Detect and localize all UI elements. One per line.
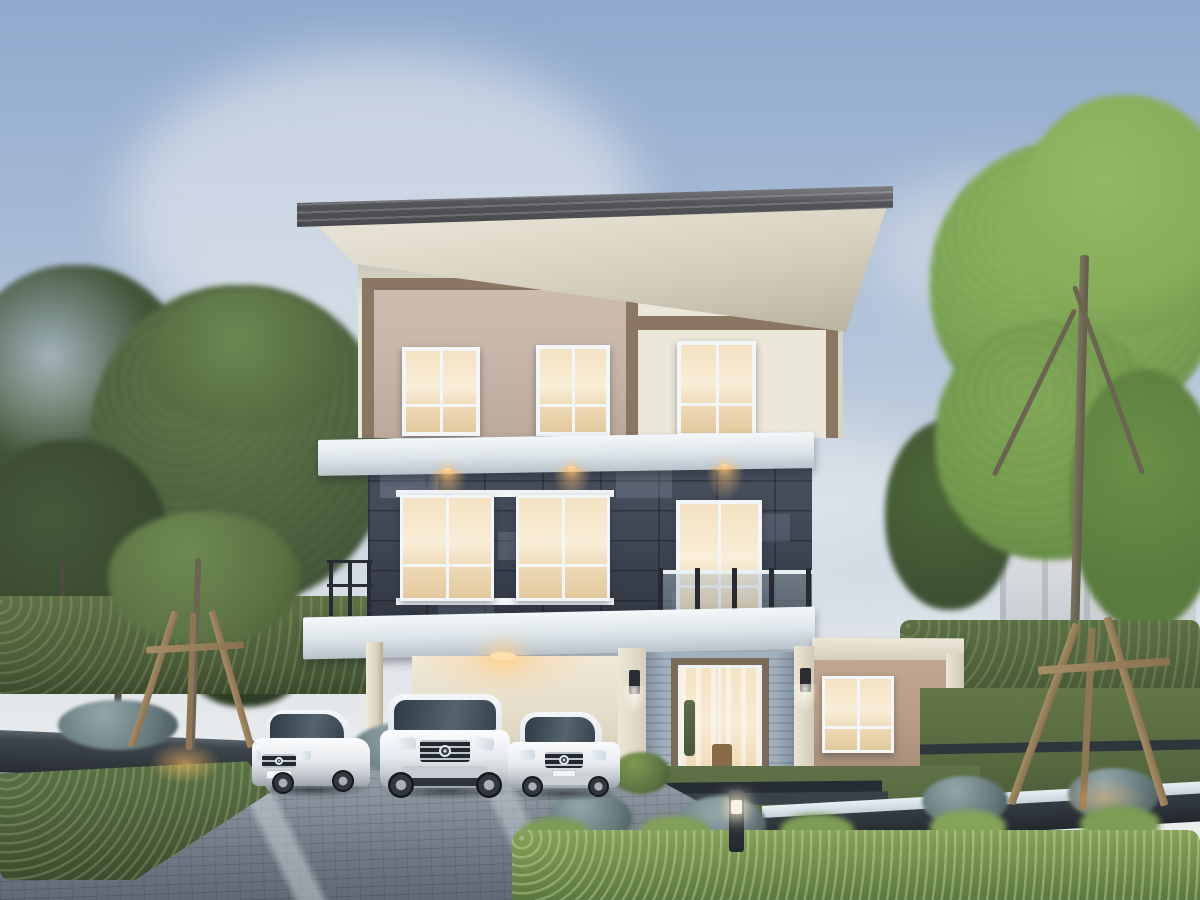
- window-third-floor-right: [677, 341, 756, 437]
- coupe-rear-wheel: [332, 770, 354, 792]
- suv-headlight: [473, 737, 494, 751]
- suv-lower-intake: [410, 778, 480, 786]
- window-second-floor-right: [516, 495, 610, 601]
- stone-tile-highlight: [616, 470, 672, 498]
- sedan-headlight: [517, 749, 536, 761]
- coupe-front-wheel: [272, 772, 294, 794]
- suv-headlight: [395, 737, 416, 751]
- suv-windshield: [394, 700, 496, 730]
- tree-canopy-right: [1070, 370, 1200, 630]
- sconce-glow: [787, 684, 823, 738]
- bollard-glow-band: [731, 800, 742, 814]
- car-coupe: [252, 706, 372, 798]
- exterior-rendering: [0, 0, 1200, 900]
- mercedes-star: [559, 755, 569, 765]
- tree-canopy-left: [150, 290, 340, 430]
- coupe-headlight: [298, 751, 311, 760]
- annex-window: [822, 676, 894, 753]
- suv-rear-wheel: [476, 772, 502, 798]
- window-third-floor-left: [402, 347, 480, 436]
- tree-canopy-right: [1020, 95, 1200, 335]
- side-railing-midrail: [327, 584, 373, 587]
- car-suv: [380, 692, 512, 800]
- mercedes-star: [439, 745, 451, 757]
- side-railing-post: [348, 560, 352, 616]
- car-sedan: [508, 708, 622, 800]
- annex-roof-band: [812, 638, 964, 663]
- window-third-floor-middle: [536, 345, 610, 436]
- suv-front-wheel: [388, 772, 414, 798]
- mercedes-star: [275, 757, 283, 765]
- side-railing-post: [329, 560, 333, 616]
- coupe-windshield: [270, 714, 344, 740]
- carport-ceiling-light: [490, 652, 516, 660]
- door-interior-plant: [684, 700, 695, 756]
- sedan-headlight: [588, 749, 607, 761]
- sedan-rear-wheel: [588, 776, 609, 797]
- front-hedge-bright: [512, 830, 1200, 900]
- sedan-windshield: [525, 717, 595, 742]
- young-tree-canopy-left: [108, 512, 300, 644]
- window-second-floor-left: [400, 495, 494, 601]
- coupe-headlight: [253, 751, 261, 762]
- side-railing-post: [367, 560, 371, 616]
- shrub-gray-left: [58, 700, 178, 750]
- suv-bumper: [402, 766, 488, 778]
- sedan-front-wheel: [522, 776, 543, 797]
